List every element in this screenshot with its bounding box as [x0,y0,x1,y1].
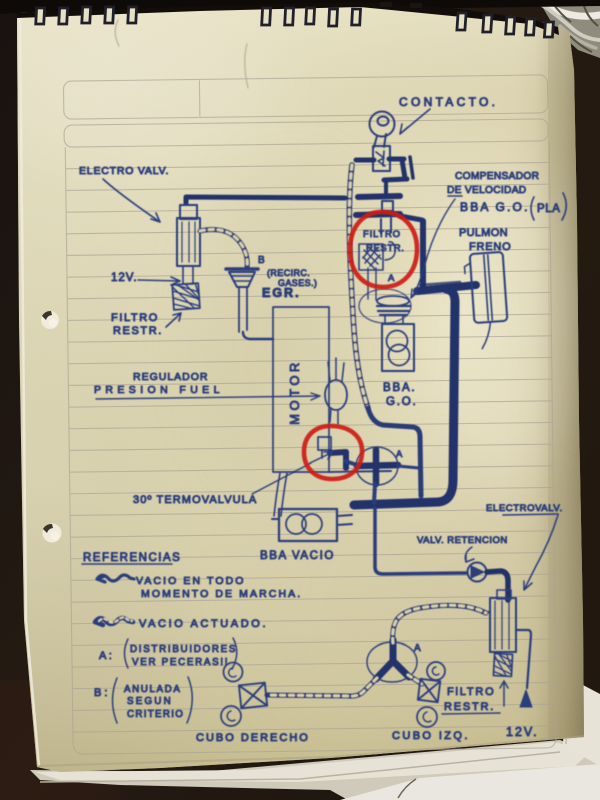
svg-text:SEGUN: SEGUN [127,696,173,707]
svg-text:ANULADA: ANULADA [124,684,181,695]
svg-text:MOTOR: MOTOR [287,359,302,425]
svg-text:DISTRIBUIDORES: DISTRIBUIDORES [130,644,237,655]
svg-text:ELECTRO VALV.: ELECTRO VALV. [79,165,169,177]
svg-text:A: A [414,643,421,654]
svg-text:ELECTROVALV.: ELECTROVALV. [486,503,563,514]
svg-text:FRENO: FRENO [469,241,512,253]
svg-text:A: A [388,273,395,284]
svg-text:FILTRO: FILTRO [363,229,401,240]
svg-text:CUBO DERECHO: CUBO DERECHO [196,732,310,744]
svg-text:CONTACTO.: CONTACTO. [399,95,498,109]
svg-text:BBA.: BBA. [383,382,416,394]
svg-text:12V.: 12V. [111,272,138,284]
svg-text:VER PECERAS!!: VER PECERAS!! [132,657,229,668]
svg-text:12V.: 12V. [506,725,539,739]
svg-text:FiLTRO: FiLTRO [447,686,495,698]
svg-text:(RECIRC.: (RECIRC. [267,268,310,278]
svg-text:G.O.: G.O. [386,396,417,408]
svg-text:MOMENTO DE MARCHA.: MOMENTO DE MARCHA. [141,588,302,600]
svg-text:RESTR.: RESTR. [444,701,495,713]
svg-text:COMPENSADOR: COMPENSADOR [455,171,539,182]
svg-text:BBA VACIO: BBA VACIO [260,550,335,562]
svg-text:DE VELOCIDAD: DE VELOCIDAD [447,185,526,196]
svg-text:VACIO ACTUADO.: VACIO ACTUADO. [139,618,268,630]
svg-text:B: B [258,255,265,266]
svg-text:B :: B : [94,687,107,699]
svg-text:30º TERMOVALVULA: 30º TERMOVALVULA [133,494,257,506]
svg-text:PLA: PLA [537,203,561,215]
svg-text:A: A [396,449,403,460]
svg-text:REGULADOR: REGULADOR [133,371,209,383]
svg-text:A :: A : [99,650,112,662]
svg-text:PRESION FUEL: PRESION FUEL [94,384,224,396]
svg-text:REFERENCIAS: REFERENCIAS [83,552,181,564]
svg-text:EGR.: EGR. [262,286,301,300]
svg-text:VALV. RETENCION: VALV. RETENCION [417,535,508,546]
svg-text:CUBO IZQ.: CUBO IZQ. [392,730,470,742]
svg-text:FILTRO: FILTRO [111,312,159,324]
svg-text:CRITERIO: CRITERIO [127,709,184,720]
svg-text:BBA G.O.: BBA G.O. [460,200,530,214]
svg-text:PULMON: PULMON [459,227,508,239]
svg-text:VACIO EN TODO: VACIO EN TODO [136,575,246,587]
svg-text:RESTR.: RESTR. [113,325,163,337]
